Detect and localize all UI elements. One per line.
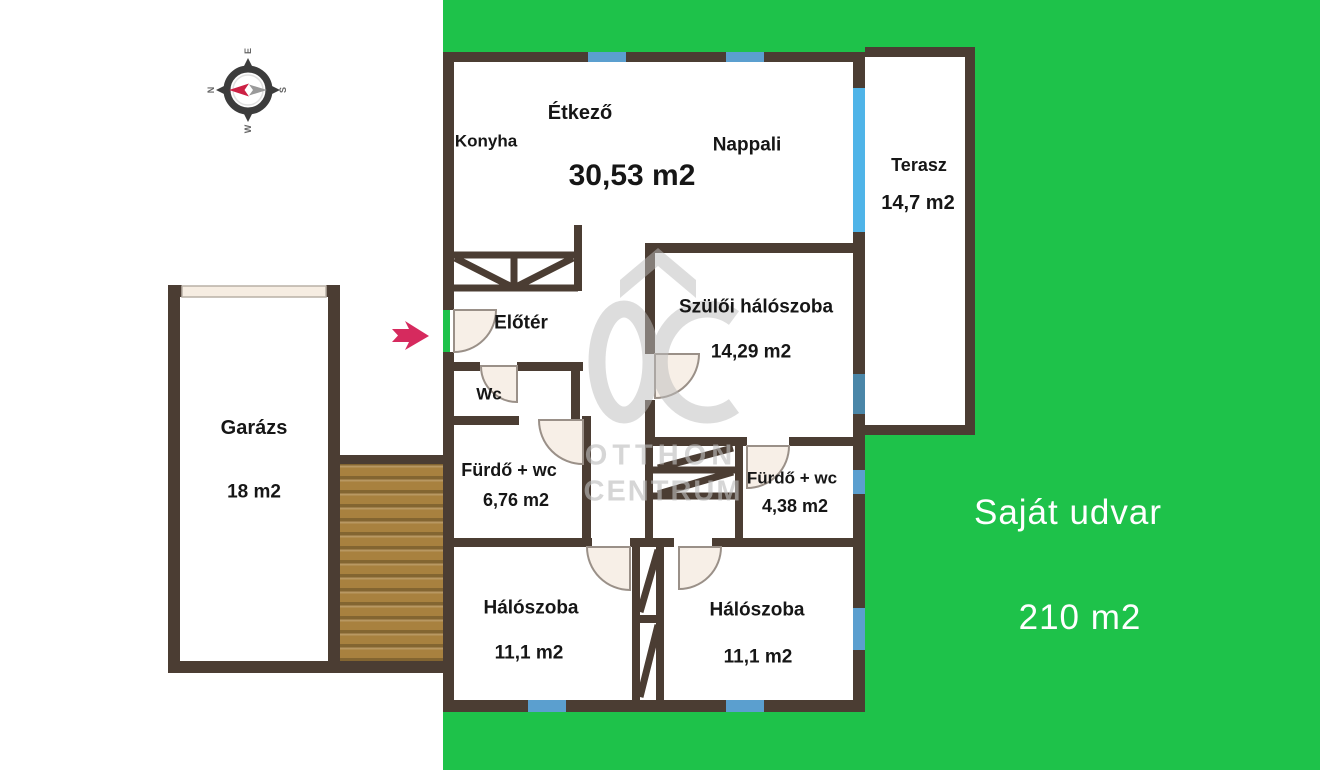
window-right-1 xyxy=(853,374,865,414)
watermark-line1: OTTHON xyxy=(585,440,737,473)
room-label-nappali: Nappali xyxy=(713,136,782,155)
compass-n: N xyxy=(206,87,216,94)
window-top-2 xyxy=(726,52,764,62)
compass-w: W xyxy=(243,124,253,133)
compass-e: E xyxy=(243,48,253,54)
compass-icon: N E S W xyxy=(206,48,288,133)
entrance-arrow xyxy=(392,321,429,350)
room-area-halo2: 11,1 m2 xyxy=(724,648,793,667)
floor-plan-image: N E S W Étkező Konyha Nappali 30,53 m2 T… xyxy=(0,0,1320,770)
room-label-furdo1: Fürdő + wc xyxy=(461,461,557,479)
room-area-furdo1: 6,76 m2 xyxy=(483,491,549,509)
room-area-garazs: 18 m2 xyxy=(227,483,281,502)
room-label-konyha: Konyha xyxy=(455,133,517,150)
room-label-furdo2: Fürdő + wc xyxy=(747,470,837,487)
terrace-glass-door xyxy=(853,88,865,232)
window-bottom-1 xyxy=(528,700,566,712)
room-label-halo2: Hálószoba xyxy=(709,601,804,620)
yard-area: 210 m2 xyxy=(1019,598,1142,638)
room-label-wc: Wc xyxy=(476,386,502,403)
room-label-szuloi: Szülői hálószoba xyxy=(679,298,833,317)
room-area-terasz: 14,7 m2 xyxy=(881,193,954,213)
room-label-terasz: Terasz xyxy=(891,156,947,174)
floor-plan-drawing: N E S W xyxy=(0,0,1320,770)
terrace-floor xyxy=(865,53,967,429)
room-area-furdo2: 4,38 m2 xyxy=(762,497,828,515)
room-area-szuloi: 14,29 m2 xyxy=(711,343,791,362)
watermark-line2: CENTRUM xyxy=(584,476,743,509)
room-area-halo1: 11,1 m2 xyxy=(495,644,564,663)
room-label-etkezo: Étkező xyxy=(548,103,612,123)
outdoor-steps xyxy=(340,464,443,661)
window-bottom-2 xyxy=(726,700,764,712)
room-label-halo1: Hálószoba xyxy=(483,599,578,618)
garage-door xyxy=(182,286,326,297)
yard-label: Saját udvar xyxy=(974,493,1162,533)
room-label-garazs: Garázs xyxy=(221,418,288,438)
garage-structure xyxy=(168,285,443,673)
window-right-2 xyxy=(853,470,865,494)
compass-s: S xyxy=(278,87,288,93)
room-area-living: 30,53 m2 xyxy=(569,161,696,191)
window-top-1 xyxy=(588,52,626,62)
window-right-3 xyxy=(853,608,865,650)
room-label-eloter: Előtér xyxy=(494,314,548,333)
